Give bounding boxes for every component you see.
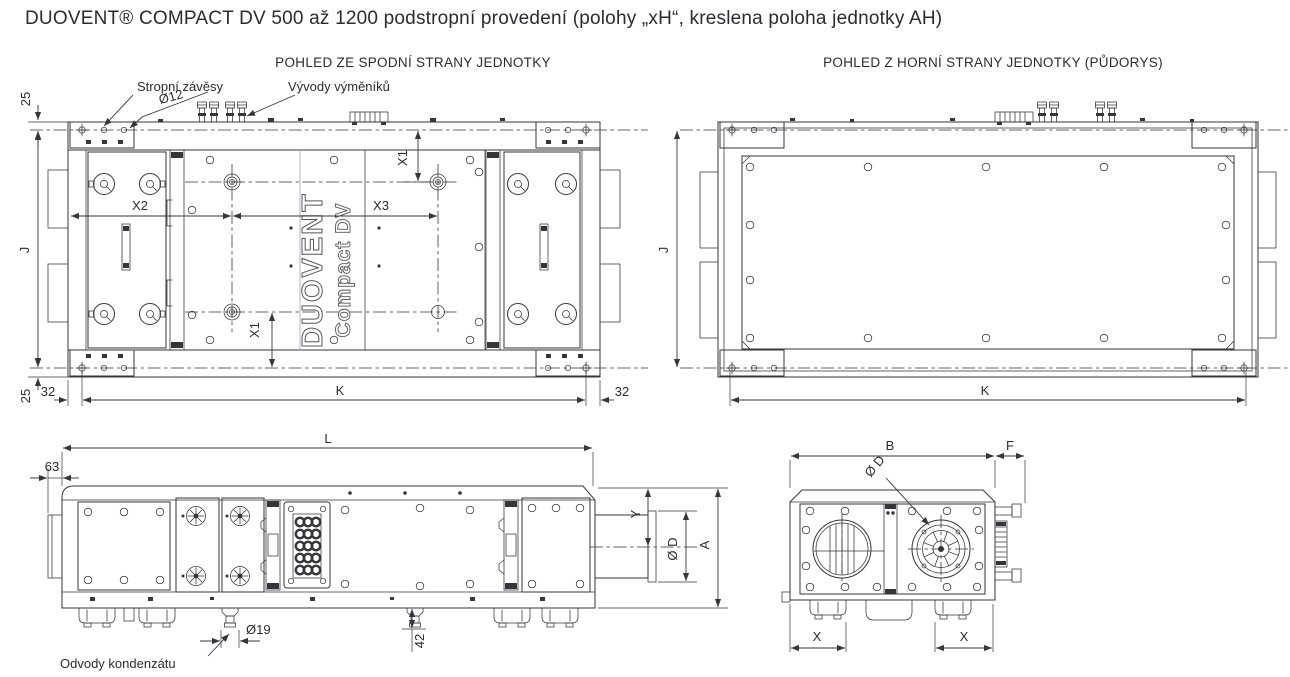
- ceiling-hanger-bracket: [1192, 122, 1256, 148]
- duct-stubs: [700, 172, 1276, 338]
- dim-x-left: X: [813, 629, 822, 644]
- view-top-of-unit: POHLED Z HORNÍ STRANY JEDNOTKY (PŮDORYS): [656, 55, 1290, 406]
- exchanger-pipe: [1108, 102, 1117, 122]
- cam-latch: [556, 304, 577, 325]
- dim-x1-top: X1: [395, 150, 410, 166]
- exchanger-pipe: [226, 102, 235, 122]
- cam-latch: [140, 304, 161, 325]
- hanger-feet: [810, 600, 971, 620]
- dimensions-end-bottom: X X: [790, 604, 993, 652]
- cam-latch: [508, 304, 529, 325]
- dim-k: K: [981, 383, 990, 398]
- dim-b: B: [886, 438, 895, 453]
- access-panel: [78, 502, 170, 590]
- dim-63: 63: [45, 459, 59, 474]
- access-panel-right: [486, 150, 580, 350]
- cable-gland-grid: [296, 518, 320, 574]
- ceiling-hanger-bracket: [720, 350, 784, 376]
- drawing-sheet: DUOVENT® COMPACT DV 500 až 1200 podstrop…: [0, 0, 1290, 677]
- dimensions-side-right: Y Ø D A: [598, 488, 728, 608]
- dim-x1-bottom: X1: [247, 322, 262, 338]
- dim-42: 42: [412, 634, 427, 648]
- dim-fan-dia: Ø D: [861, 452, 887, 479]
- dim-a: A: [697, 540, 712, 549]
- divider-strip: [884, 504, 897, 594]
- brand-text-compact-dv: Compact DV: [332, 203, 355, 338]
- dim-x3: X3: [373, 198, 389, 213]
- centerlines: [680, 130, 1290, 368]
- dimensions-top-view: J K: [656, 131, 1246, 406]
- center-console: [866, 600, 912, 620]
- terminal-block: [350, 112, 388, 125]
- view-top-title: POHLED Z HORNÍ STRANY JEDNOTKY (PŮDORYS): [823, 55, 1163, 70]
- exchanger-pipe: [1038, 102, 1047, 122]
- dim-25-top: 25: [18, 92, 33, 106]
- view-end: B F: [782, 438, 1025, 652]
- exchanger-pipe: [198, 102, 207, 122]
- star-fastener: [231, 507, 250, 526]
- end-panel: [522, 498, 590, 592]
- dim-32-right: 32: [615, 384, 629, 399]
- ceiling-hanger-bracket: [1192, 350, 1256, 376]
- hinge-strip: [167, 150, 184, 350]
- star-fastener: [187, 567, 206, 586]
- dim-32-left: 32: [41, 384, 55, 399]
- ceiling-hanger-bracket: [720, 122, 784, 148]
- exchanger-pipe: [238, 102, 247, 122]
- ceiling-hanger-bracket: [70, 122, 134, 148]
- cam-latch: [556, 174, 577, 195]
- technical-drawing: DUOVENT® COMPACT DV 500 až 1200 podstrop…: [0, 0, 1290, 677]
- view-side-elevation: L 63: [30, 431, 728, 671]
- exchanger-pipe: [1050, 102, 1059, 122]
- damper-opening: [813, 514, 884, 584]
- condensate-drain: [222, 608, 238, 627]
- blank-face-screws: [341, 504, 474, 590]
- dim-l: L: [324, 431, 331, 446]
- dim-x-right: X: [960, 629, 969, 644]
- page-title: DUOVENT® COMPACT DV 500 až 1200 podstrop…: [25, 8, 942, 29]
- dim-25-bottom: 25: [18, 389, 33, 403]
- middle-face: DUOVENT Compact DV: [188, 150, 485, 350]
- exchanger-pipes-right: [995, 504, 1021, 582]
- dim-x2: X2: [132, 198, 148, 213]
- right-duct: [590, 511, 700, 582]
- terminal-block: [995, 112, 1033, 125]
- callout-fan-dia: Ø D: [861, 452, 929, 525]
- star-fastener: [187, 507, 206, 526]
- access-panel-left: [88, 152, 166, 348]
- cam-latch: [94, 304, 115, 325]
- brand-text-duovent: DUOVENT: [297, 192, 329, 348]
- dim-f: F: [1006, 438, 1014, 453]
- dimensions-side-top: L 63: [30, 431, 593, 513]
- exchanger-pipe: [210, 102, 219, 122]
- hanger-feet: [79, 608, 578, 627]
- dimensions-end-top: B F: [790, 438, 1025, 503]
- outlets-label: Vývody výměníků: [288, 79, 390, 94]
- star-fastener: [231, 567, 250, 586]
- callout-exchanger-outlets: Vývody výměníků: [247, 79, 390, 116]
- ceiling-hanger-bracket: [536, 350, 600, 376]
- dim-k: K: [336, 383, 345, 398]
- condensate-label: Odvody kondenzátu: [60, 656, 176, 671]
- dim-d19: Ø19: [246, 622, 271, 637]
- condensate-drain: [407, 608, 423, 627]
- latch-strip: [499, 500, 518, 590]
- ceiling-hanger-bracket: [536, 122, 600, 148]
- view-bottom-of-unit: POHLED ZE SPODNÍ STRANY JEDNOTKY: [17, 55, 648, 406]
- cam-latch: [508, 174, 529, 195]
- cam-latch: [94, 174, 115, 195]
- dim-j: J: [17, 247, 32, 254]
- left-duct-stub: [48, 515, 62, 578]
- dim-duct-dia: Ø D: [665, 537, 680, 560]
- cam-latch: [140, 174, 161, 195]
- lid-screws: [746, 163, 1230, 342]
- dim-y: Y: [628, 509, 643, 518]
- fan-opening: [908, 515, 974, 583]
- view-bottom-title: POHLED ZE SPODNÍ STRANY JEDNOTKY: [275, 55, 551, 70]
- bottom-band-rivets: [90, 597, 545, 601]
- fan-section-panels: [176, 498, 264, 592]
- casing-outline: [718, 122, 1258, 377]
- exchanger-pipe: [1096, 102, 1105, 122]
- dim-j: J: [656, 247, 671, 254]
- connector-panel: [284, 502, 330, 588]
- ceiling-hanger-bracket: [70, 350, 134, 376]
